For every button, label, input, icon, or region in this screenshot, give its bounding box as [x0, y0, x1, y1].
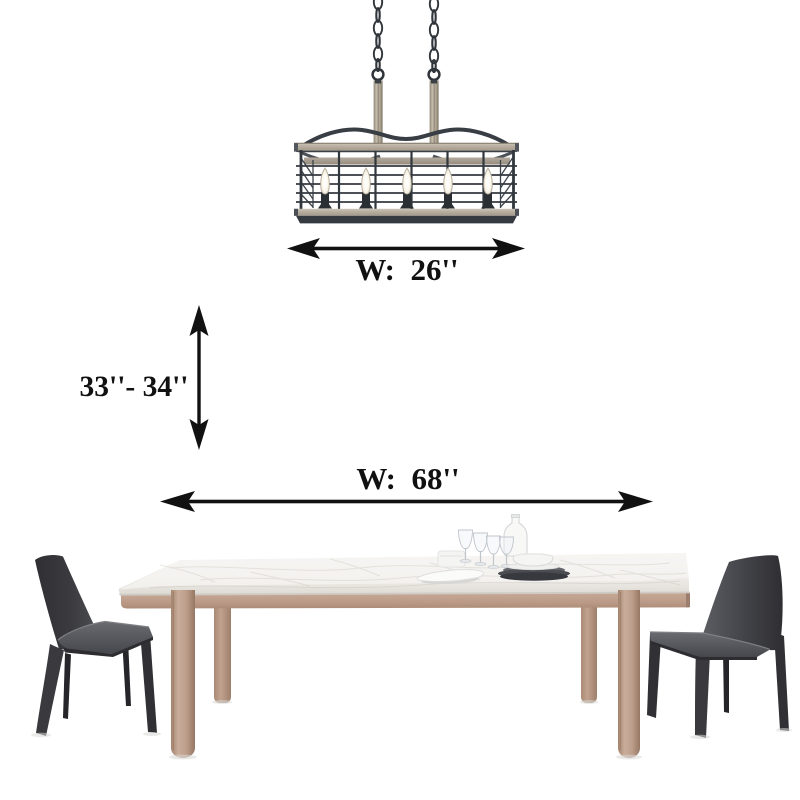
svg-text:33''- 34'': 33''- 34'' — [80, 371, 189, 403]
svg-text:W: 68'': W: 68'' — [356, 461, 459, 496]
svg-text:W: 26'': W: 26'' — [355, 252, 458, 287]
